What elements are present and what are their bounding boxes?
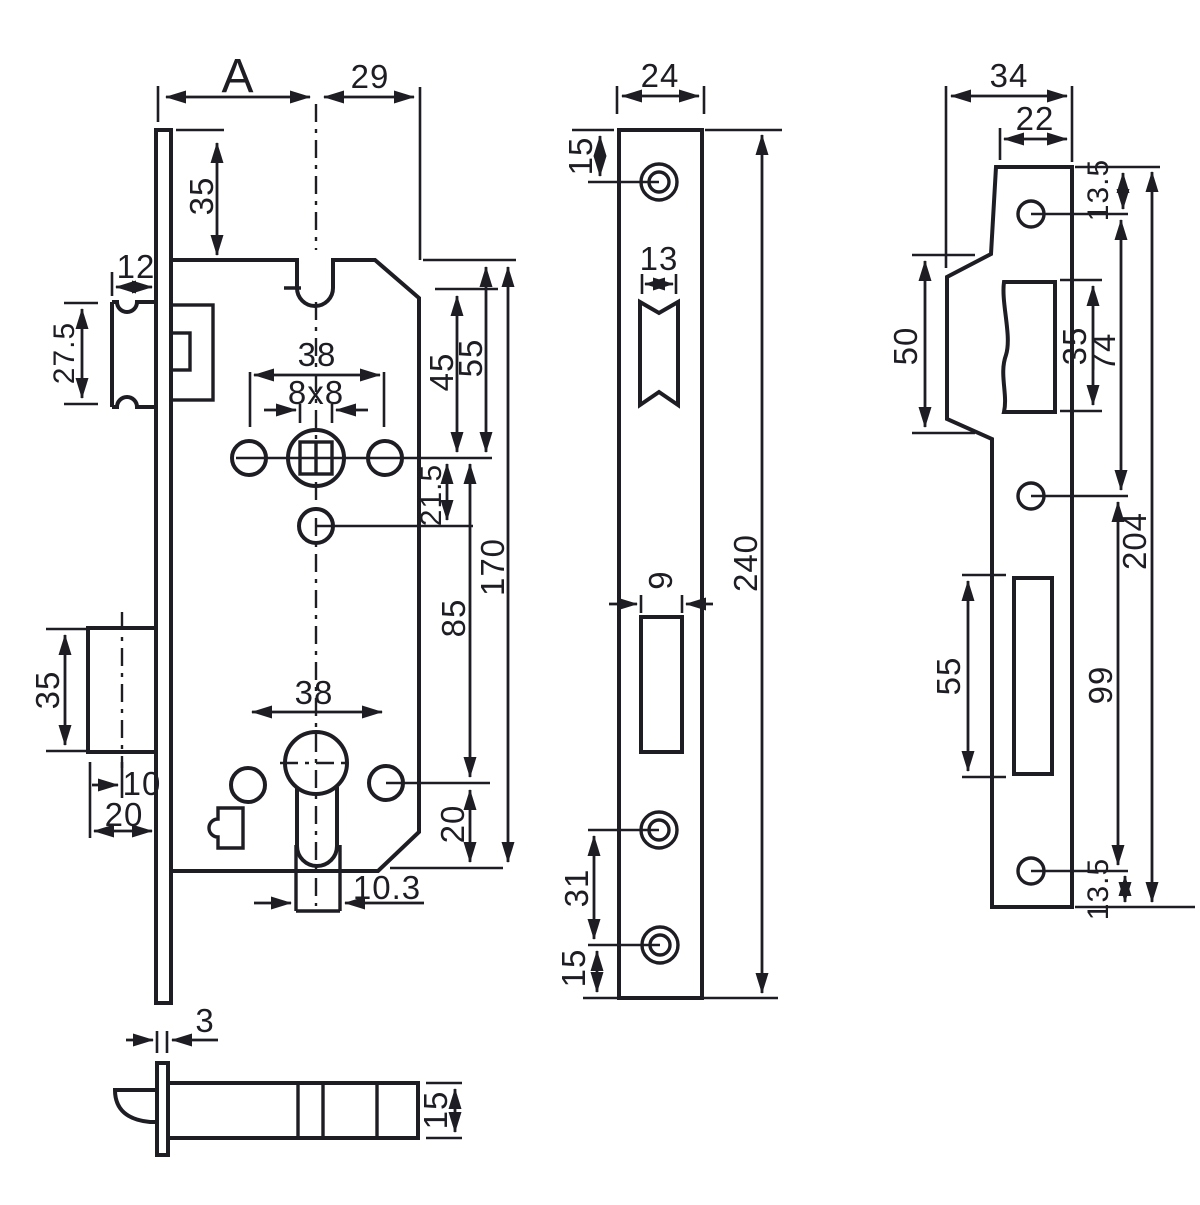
dim-29: 29: [324, 58, 420, 260]
dim-label-3: 3: [195, 1002, 214, 1039]
dim-22: 22: [1000, 100, 1067, 160]
dim-34: 34: [946, 57, 1072, 268]
latch-bolt-front: [112, 302, 156, 407]
dim-label-85: 85: [435, 599, 472, 638]
dim-label-29: 29: [351, 58, 390, 95]
latch-tail: [171, 305, 213, 400]
dim-label-13: 13: [640, 240, 679, 277]
dim-45-55-170-stack: 45 55 170 21.5 85 20: [390, 260, 516, 868]
dim-label-22: 22: [1016, 100, 1055, 137]
dim-74: 74: [1085, 220, 1122, 490]
dim-label-10-3: 10.3: [353, 869, 421, 906]
dim-15-latch: 15: [417, 1083, 462, 1138]
dim-15-bottom: 15: [555, 949, 597, 992]
cylinder-screw-hole-left: [231, 768, 265, 802]
dim-13-5-top: 13.5: [1075, 159, 1160, 221]
dim-label-27-5: 27.5: [48, 322, 81, 384]
latch-tail-step: [171, 333, 190, 370]
dim-31: 31: [558, 836, 595, 939]
latch-bevel-nose: [115, 1090, 157, 1122]
dim-27-5: 27.5: [48, 303, 98, 404]
dim-label-20-bottom: 20: [434, 805, 471, 844]
mortise-lock-technical-drawing: A 29 35 12 27.5: [0, 0, 1200, 1200]
dim-35-deadbolt: 35: [29, 629, 90, 751]
dim-label-9: 9: [642, 570, 679, 589]
strike-latch-opening: [1003, 282, 1055, 412]
dim-9: 9: [609, 570, 713, 613]
dim-label-12: 12: [117, 248, 156, 285]
dim-240: 240: [583, 130, 782, 998]
strike-plate-view: 34 22 13.5 50 35 7: [887, 57, 1195, 920]
dim-label-21-5: 21.5: [415, 464, 448, 526]
dim-label-99: 99: [1082, 666, 1119, 705]
deadbolt-opening: [641, 617, 682, 752]
lock-case-outline: [171, 260, 419, 871]
screw-hole-lower-1: [588, 812, 677, 848]
dim-label-50: 50: [887, 327, 924, 366]
strike-deadbolt-opening: [1014, 578, 1052, 774]
dim-label-55-bolt: 55: [930, 657, 967, 696]
dim-label-55: 55: [452, 339, 489, 378]
dim-13-5-bottom: 13.5: [1075, 858, 1195, 920]
screw-hole-lower-2: [588, 927, 678, 963]
dim-backset-a: A: [158, 50, 310, 122]
technical-drawing-page: A 29 35 12 27.5: [0, 0, 1200, 1200]
dim-label-13-5-top: 13.5: [1082, 159, 1115, 221]
dim-label-8x8: 8x8: [288, 374, 344, 411]
dim-label-20-front: 20: [105, 796, 144, 833]
dim-55-bolt: 55: [930, 575, 1006, 777]
dim-15-top: 15: [562, 130, 614, 176]
snib-cutout: [209, 808, 243, 848]
dim-50: 50: [887, 255, 975, 433]
dim-99: 99: [1082, 502, 1119, 865]
dim-38-cylinder: 38: [252, 674, 382, 712]
dim-label-a: A: [221, 50, 254, 103]
dim-35-top: 35: [176, 130, 224, 255]
dim-label-74: 74: [1085, 333, 1122, 372]
dim-label-35-top: 35: [183, 177, 220, 216]
dim-label-204: 204: [1116, 512, 1153, 570]
dim-label-35-deadbolt: 35: [29, 671, 66, 710]
dim-label-31: 31: [558, 869, 595, 908]
dim-24: 24: [617, 57, 704, 114]
dim-label-38-spindle: 38: [298, 336, 337, 373]
dim-10-20-front: 10 20: [90, 762, 161, 838]
strike-plate-outline: [947, 167, 1072, 907]
dim-label-38-cylinder: 38: [295, 674, 334, 711]
spindle-hub: [232, 430, 492, 486]
faceplate-view: 24 15 13 9 240: [555, 57, 782, 998]
latch-opening: [640, 302, 678, 405]
faceplate-edge-strip: [156, 130, 171, 1003]
dim-3: 3: [126, 1002, 218, 1053]
dim-label-170: 170: [474, 538, 511, 596]
dim-13: 13: [640, 240, 679, 294]
dim-label-15-latch: 15: [417, 1091, 454, 1130]
dim-label-34: 34: [990, 57, 1029, 94]
dim-12: 12: [112, 248, 156, 296]
dim-label-24: 24: [641, 57, 680, 94]
latch-bolt-side: [168, 1083, 418, 1138]
dim-label-15-bottom: 15: [555, 949, 592, 988]
lock-body-view: A 29 35 12 27.5: [29, 50, 516, 1003]
dim-label-240: 240: [727, 534, 764, 592]
latch-side-detail-view: 3 15: [115, 1002, 462, 1155]
dim-label-13-5-bottom: 13.5: [1082, 858, 1115, 920]
dim-label-15-top: 15: [562, 137, 599, 176]
